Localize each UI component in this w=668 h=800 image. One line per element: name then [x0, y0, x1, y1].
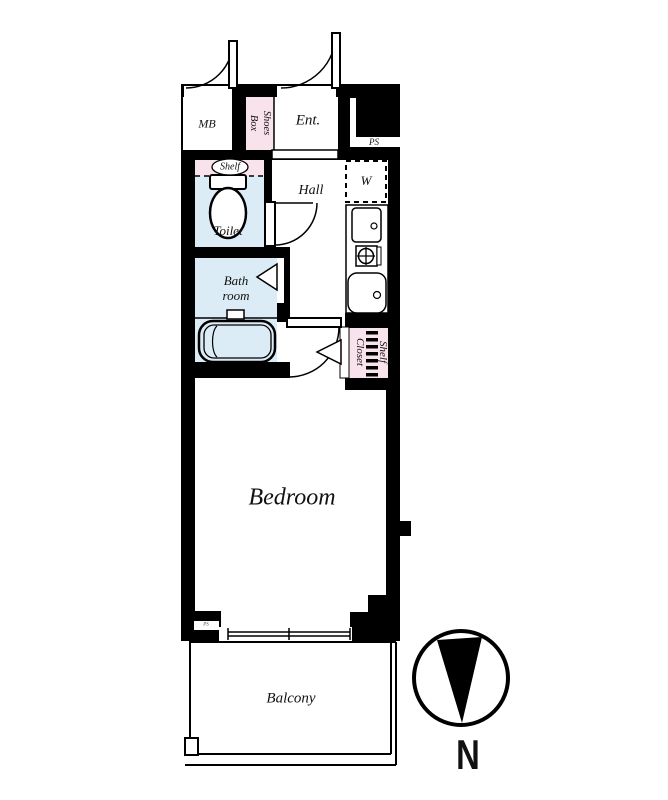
floor-plan-drawing: [0, 0, 668, 800]
toilet-door: [265, 202, 317, 246]
entrance-label: Ent.: [296, 113, 321, 130]
hall-label: Hall: [299, 183, 324, 199]
ps-label: PS: [369, 137, 379, 147]
bedroom-door: [287, 318, 349, 378]
bath-doorway: [277, 258, 284, 303]
shoes-box-label: Shoes Box: [247, 93, 273, 153]
entrance-door: [281, 33, 340, 88]
bedroom-label: Bedroom: [248, 485, 335, 512]
mb-door: [186, 41, 237, 88]
wall-ps-label: PS: [203, 623, 209, 628]
balcony-label: Balcony: [266, 691, 315, 708]
mb-label: MB: [198, 117, 215, 132]
bathroom-label: Bath room: [196, 273, 276, 303]
compass-north-label: N: [456, 731, 480, 779]
entrance-step: [272, 150, 338, 159]
floor-plan: MB Shoes Box Ent. PS Shelf Toilet Hall W…: [0, 0, 668, 800]
compass-icon: [414, 631, 508, 725]
kitchen-counter-icon: [346, 205, 388, 313]
toilet-label: Toilet: [213, 223, 242, 239]
washer-label: W: [361, 173, 372, 189]
toilet-shelf-label: Shelf: [220, 162, 240, 173]
shelf-closet-label: Shelf Closet: [348, 324, 394, 380]
window-icon: [219, 627, 352, 641]
